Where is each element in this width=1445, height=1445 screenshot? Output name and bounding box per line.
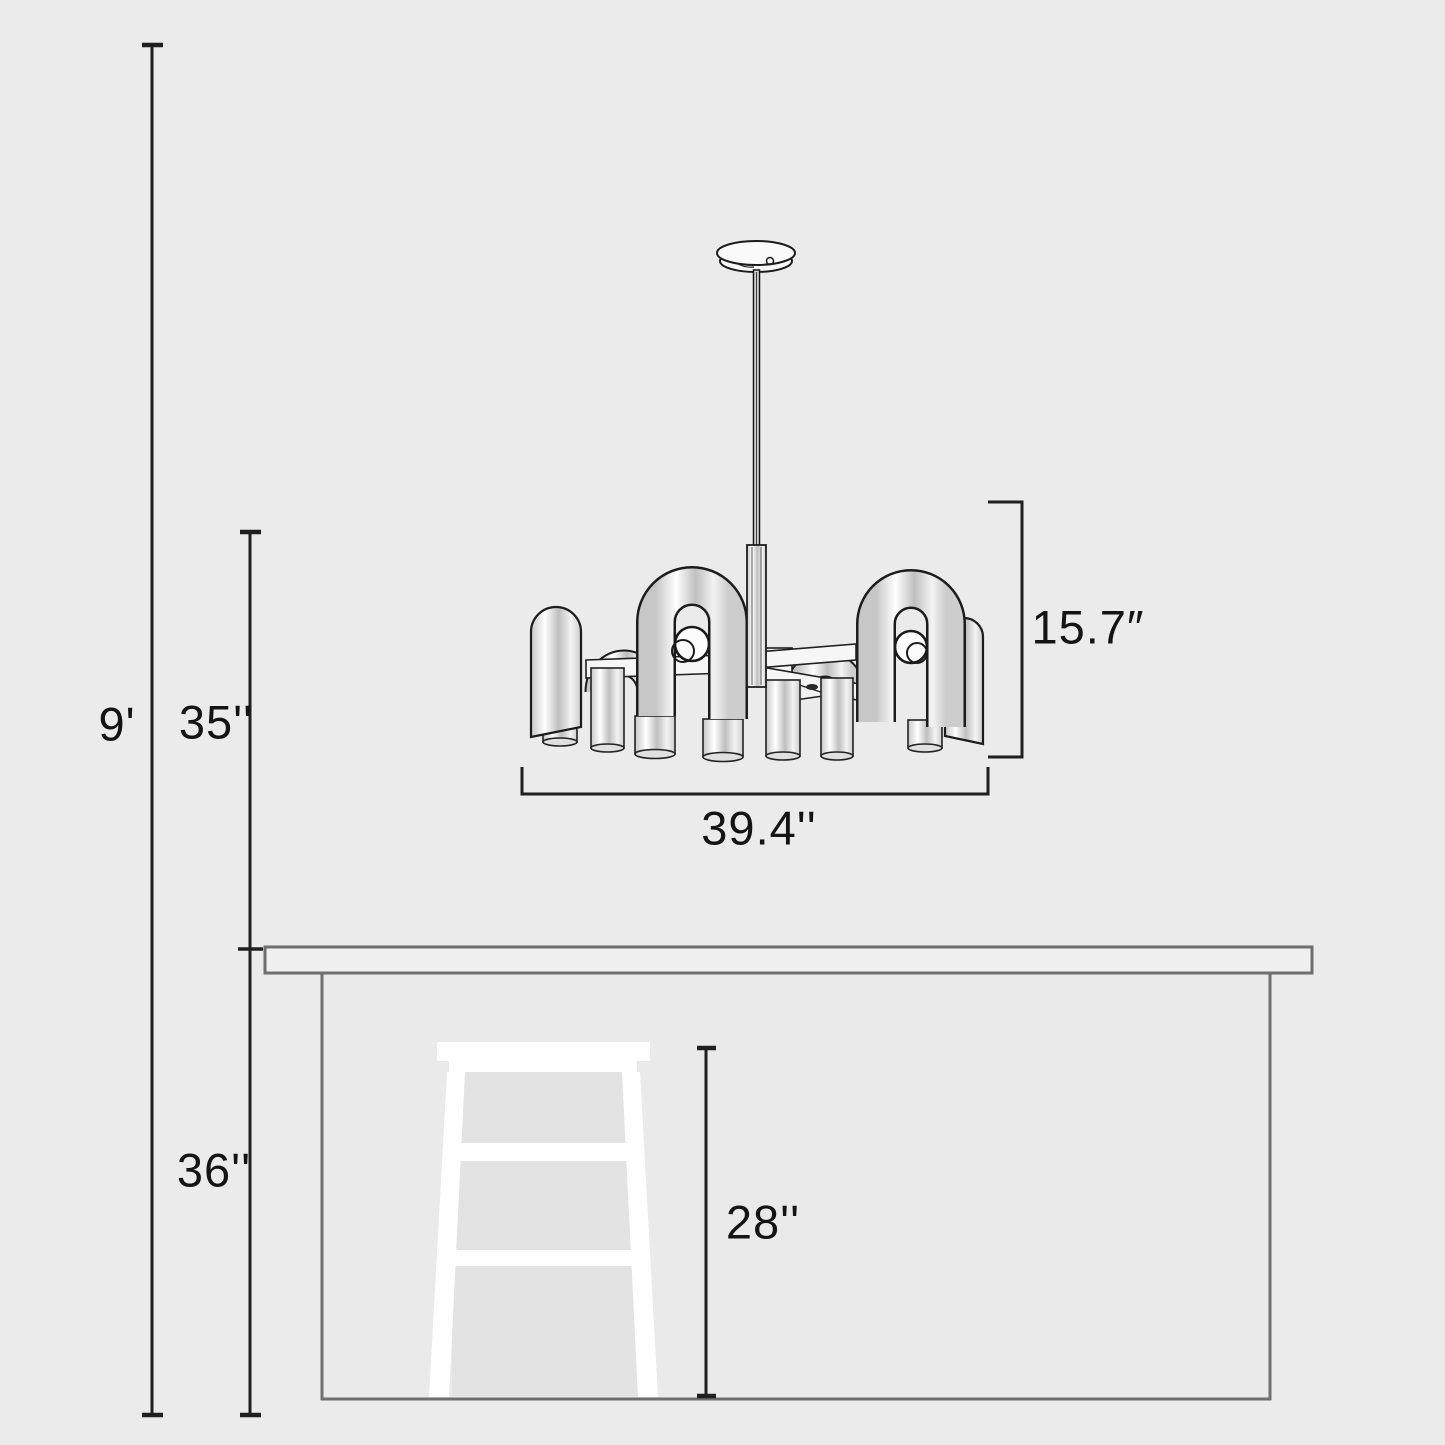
chandelier-drawing [531, 241, 983, 762]
dim-line-room-height [142, 44, 163, 1416]
tube-far-left [531, 607, 581, 737]
label-hanging-drop: 35'' [179, 699, 253, 746]
stool-drawing [429, 1042, 658, 1397]
label-table-height: 36'' [177, 1147, 251, 1194]
label-stool-height: 28'' [726, 1199, 800, 1246]
stem [747, 545, 766, 687]
label-fixture-height: 15.7″ [1031, 604, 1144, 651]
ceiling-canopy [717, 241, 795, 272]
dim-bracket-fixture-width [522, 767, 988, 794]
dim-bracket-fixture-height [988, 502, 1022, 757]
table-drawing [265, 947, 1312, 1399]
label-room-height: 9' [98, 701, 135, 748]
dim-line-drop-and-table [238, 531, 263, 1416]
dimension-diagram: 9' 35'' 15.7″ 39.4'' 36'' 28'' [0, 0, 1445, 1445]
label-fixture-width: 39.4'' [701, 805, 816, 852]
